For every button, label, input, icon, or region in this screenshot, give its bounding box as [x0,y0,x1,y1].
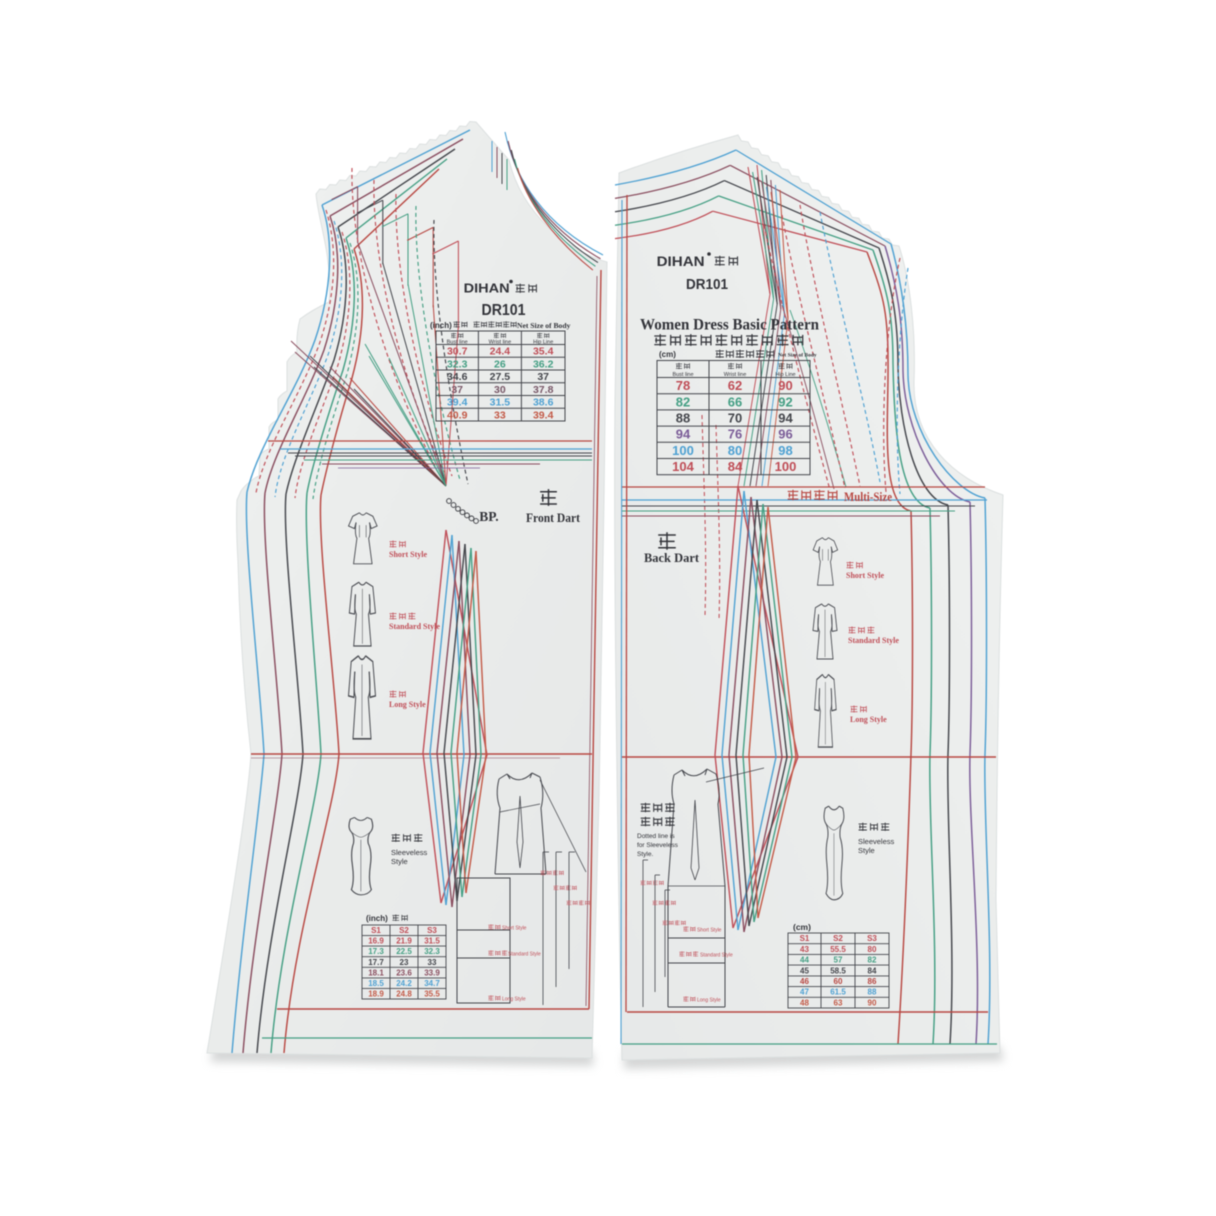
svg-text:88: 88 [868,988,877,997]
svg-text:Wrist line: Wrist line [724,372,747,378]
svg-text:Hip Line: Hip Line [775,372,795,378]
svg-text:16.9: 16.9 [368,937,384,946]
svg-text:Wrist line: Wrist line [489,340,512,346]
svg-text:39.4: 39.4 [447,397,468,409]
svg-text:S3: S3 [427,926,437,935]
svg-text:32.3: 32.3 [447,358,468,370]
svg-text:78: 78 [676,378,690,393]
svg-text:35.4: 35.4 [533,346,554,358]
svg-text:Bust line: Bust line [447,340,468,346]
svg-text:Bust line: Bust line [672,372,693,378]
svg-text:84: 84 [728,459,743,474]
svg-text:Back Dart: Back Dart [644,551,700,565]
svg-text:35.5: 35.5 [424,990,440,999]
svg-text:31.5: 31.5 [424,937,440,946]
svg-text:(inch): (inch) [430,321,452,330]
svg-text:22.5: 22.5 [396,947,412,956]
svg-text:80: 80 [868,945,877,954]
svg-text:Dotted line is: Dotted line is [637,833,675,840]
svg-text:34.7: 34.7 [424,979,440,988]
svg-text:37: 37 [451,384,463,396]
svg-text:Style.: Style. [637,851,653,858]
svg-text:94: 94 [676,427,691,442]
svg-text:43: 43 [800,945,809,954]
svg-text:100: 100 [672,443,694,458]
svg-text:92: 92 [778,394,792,409]
svg-text:24.8: 24.8 [396,990,412,999]
svg-text:17.3: 17.3 [368,947,384,956]
svg-text:Standard Style: Standard Style [848,636,899,645]
svg-text:DIHAN: DIHAN [657,254,705,269]
svg-text:24.4: 24.4 [490,346,511,358]
svg-text:Net Size of Body: Net Size of Body [517,321,571,330]
svg-text:Long Style: Long Style [389,700,426,709]
svg-text:18.1: 18.1 [368,968,384,977]
svg-text:Long Style: Long Style [850,715,887,724]
svg-text:44: 44 [800,956,809,965]
svg-text:S3: S3 [867,934,877,943]
svg-text:37: 37 [537,371,549,383]
svg-text:Long Style: Long Style [697,998,721,1004]
svg-text:Sleeveless: Sleeveless [858,837,895,846]
svg-text:38.6: 38.6 [533,397,554,409]
svg-text:Multi-Size: Multi-Size [844,489,892,504]
svg-text:Long Style: Long Style [502,997,526,1003]
svg-text:24.2: 24.2 [396,979,412,988]
svg-text:S2: S2 [399,926,409,935]
svg-text:for Sleeveless: for Sleeveless [637,842,679,849]
svg-text:Short Style: Short Style [502,926,527,932]
svg-text:(cm): (cm) [793,922,811,932]
svg-text:82: 82 [868,956,877,965]
svg-text:DIHAN: DIHAN [464,281,510,296]
svg-text:80: 80 [728,443,742,458]
svg-text:Net Size of Body: Net Size of Body [778,353,817,359]
svg-text:30: 30 [494,384,506,396]
svg-text:Standard Style: Standard Style [508,952,541,958]
svg-text:Front Dart: Front Dart [526,510,581,525]
svg-text:33: 33 [428,958,437,967]
svg-text:61.5: 61.5 [830,988,846,997]
svg-text:(inch): (inch) [366,914,388,923]
svg-text:27.5: 27.5 [490,371,511,383]
svg-text:17.7: 17.7 [368,958,384,967]
svg-text:32.3: 32.3 [424,947,440,956]
svg-text:Style: Style [858,846,875,855]
svg-text:82: 82 [676,394,690,409]
svg-text:70: 70 [728,411,742,426]
svg-text:63: 63 [834,998,843,1007]
svg-text:48: 48 [800,998,809,1007]
svg-text:76: 76 [728,427,742,442]
svg-text:Sleeveless: Sleeveless [391,848,428,857]
svg-text:98: 98 [778,443,792,458]
svg-text:37.8: 37.8 [533,384,554,396]
svg-text:Short Style: Short Style [697,928,722,934]
svg-text:39.4: 39.4 [533,409,554,421]
svg-text:33.9: 33.9 [424,968,440,977]
svg-text:BP.: BP. [479,509,498,524]
svg-text:Women Dress Basic Pattern: Women Dress Basic Pattern [640,317,819,334]
svg-text:Hip Line: Hip Line [533,340,553,346]
svg-text:55.5: 55.5 [830,945,846,954]
svg-text:30.7: 30.7 [447,346,468,358]
svg-text:57: 57 [834,956,843,965]
svg-text:23.6: 23.6 [396,968,412,977]
svg-text:90: 90 [868,998,877,1007]
svg-text:94: 94 [778,411,793,426]
svg-text:Short Style: Short Style [846,571,884,580]
svg-text:S2: S2 [833,934,843,943]
svg-text:62: 62 [728,378,742,393]
svg-text:31.5: 31.5 [490,397,511,409]
svg-text:DR101: DR101 [686,277,728,293]
svg-text:36.2: 36.2 [533,358,554,370]
svg-text:84: 84 [868,966,877,975]
svg-text:26: 26 [494,358,506,370]
svg-text:Style: Style [391,857,408,866]
svg-text:Short Style: Short Style [389,550,427,559]
svg-text:40.9: 40.9 [447,409,468,421]
svg-text:45: 45 [800,966,809,975]
svg-text:88: 88 [676,411,690,426]
svg-text:18.5: 18.5 [368,979,384,988]
svg-text:23: 23 [400,958,409,967]
svg-text:58.5: 58.5 [830,966,846,975]
svg-text:34.6: 34.6 [447,371,468,383]
svg-text:90: 90 [778,378,792,393]
svg-text:66: 66 [728,394,742,409]
svg-text:33: 33 [494,409,506,421]
svg-text:S1: S1 [371,926,381,935]
svg-text:Standard Style: Standard Style [700,953,733,959]
svg-text:104: 104 [672,459,694,474]
svg-text:S1: S1 [800,934,810,943]
svg-text:Standard Style: Standard Style [389,622,440,631]
svg-text:86: 86 [868,977,877,986]
svg-text:100: 100 [775,459,797,474]
svg-text:46: 46 [800,977,809,986]
svg-text:18.9: 18.9 [368,990,384,999]
svg-text:60: 60 [834,977,843,986]
svg-text:21.9: 21.9 [396,937,412,946]
svg-text:DR101: DR101 [482,302,526,319]
svg-text:(cm): (cm) [659,350,676,359]
svg-text:96: 96 [778,427,792,442]
svg-text:47: 47 [800,988,809,997]
